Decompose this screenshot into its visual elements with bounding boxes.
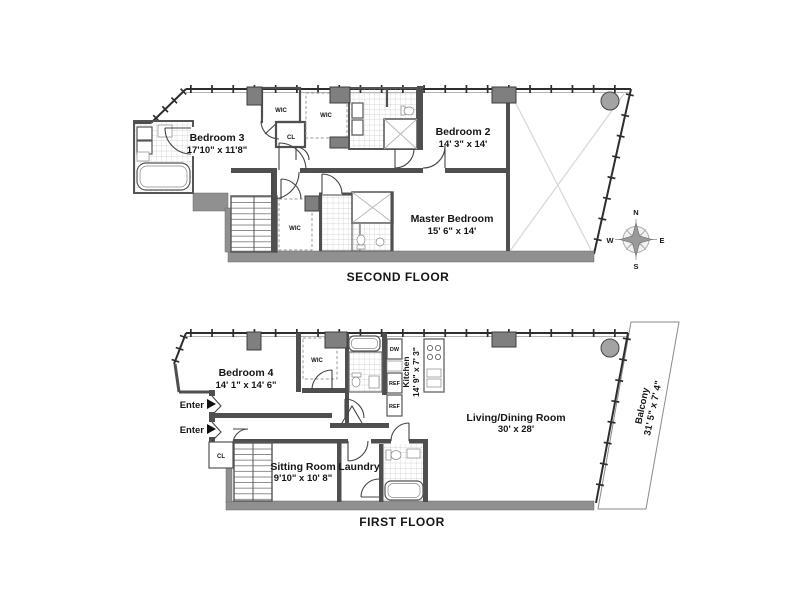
enter-label: Enter (180, 425, 205, 436)
door-swing-icon (296, 147, 309, 160)
bathtub-icon (352, 339, 378, 349)
bedroom3-dims: 17'10" x 11'8" (187, 145, 248, 156)
column-round (601, 92, 619, 110)
bedroom3-label: Bedroom 3 (190, 132, 245, 144)
column (492, 332, 516, 347)
vanity-icon (352, 120, 363, 135)
cabinet (387, 361, 402, 371)
closet-label: CL (217, 454, 225, 460)
door-swing-icon (361, 479, 379, 497)
dw-label: DW (390, 347, 400, 353)
door-swing-icon (348, 441, 368, 461)
second-floor-title: SECOND FLOOR (347, 270, 450, 284)
toilet-icon (391, 451, 401, 460)
enter-label: Enter (180, 400, 205, 411)
toilet-icon (352, 373, 361, 377)
toilet-icon (352, 377, 360, 387)
sink-icon (369, 376, 379, 388)
bathroom-lower-first-floor (384, 444, 423, 501)
sitting-room-label: Sitting Room (270, 461, 335, 473)
door-swing-icon (322, 174, 342, 194)
door-swing-icon (391, 423, 409, 441)
bedroom4-dims: 14' 1" x 14' 6" (215, 380, 276, 391)
open-area-cross-lines (510, 92, 624, 251)
master-bedroom-label: Master Bedroom (411, 213, 494, 225)
laundry-label: Laundry (338, 461, 380, 473)
column (247, 332, 261, 350)
compass-west-label: W (606, 236, 614, 245)
enter-arrow-icon (207, 399, 216, 409)
floor-plan-canvas: Bedroom 3 17'10" x 11'8" Bedroom 2 14' 3… (0, 0, 800, 600)
sink-icon (407, 449, 420, 458)
entry-area: Enter Enter (175, 364, 221, 443)
column (247, 87, 262, 105)
vanity-icon (137, 127, 152, 140)
first-floor-title: FIRST FLOOR (359, 515, 445, 529)
wall-step (225, 208, 231, 252)
second-floor-plan: Bedroom 3 17'10" x 11'8" Bedroom 2 14' 3… (134, 86, 631, 284)
bedroom2-label: Bedroom 2 (436, 126, 491, 138)
column-round (601, 339, 619, 357)
first-floor-south-wall (226, 501, 594, 510)
compass-north-label: N (633, 208, 638, 217)
floor-plan-drawing: Bedroom 3 17'10" x 11'8" Bedroom 2 14' 3… (0, 0, 800, 600)
second-floor-south-wall (228, 251, 594, 262)
wic-label: WIC (311, 358, 323, 364)
toilet-icon (357, 235, 365, 245)
bedroom2-dims: 14' 3" x 14' (439, 139, 488, 150)
door-swing-icon (312, 370, 332, 390)
sink-icon (376, 238, 384, 246)
compass-star (620, 223, 652, 256)
counter-icon (427, 379, 441, 387)
bathroom-second-floor (134, 121, 196, 193)
first-floor-plan: Balcony 31' 5" x 7' 4" Enter (174, 322, 679, 529)
kitchen-dims: 14' 9" x 7' 3" (411, 347, 421, 397)
master-bedroom-dims: 15' 6" x 14' (428, 226, 477, 237)
toilet-icon (137, 152, 149, 161)
staircase-first-floor (234, 442, 272, 501)
door-swing-icon (395, 149, 414, 168)
bedroom4-label: Bedroom 4 (219, 367, 274, 379)
closet-label: CL (287, 135, 295, 141)
toilet-icon (386, 450, 391, 460)
wic-label: WIC (289, 226, 301, 232)
vanity-icon (352, 103, 363, 118)
bathroom-upper-first-floor (349, 336, 382, 392)
bathroom-bedroom2 (349, 86, 423, 168)
sitting-room-dims: 9'10" x 10' 8" (274, 473, 332, 484)
column (492, 87, 516, 103)
bathtub-icon (140, 166, 187, 187)
toilet-icon (404, 107, 414, 115)
wic-label: WIC (320, 113, 332, 119)
kitchen-label: Kitchen (401, 356, 411, 387)
wall-step (226, 464, 232, 502)
compass-east-label: E (659, 236, 664, 245)
column (330, 87, 350, 103)
bathtub-icon (388, 484, 420, 498)
column (325, 332, 347, 348)
ref-label: REF (389, 404, 401, 410)
compass-south-label: S (633, 262, 638, 271)
living-dining-label: Living/Dining Room (466, 412, 565, 424)
compass-rose: N S W E (606, 208, 664, 271)
kitchen: DW REF REF Kitchen 14' 9" x 7' 3" (387, 339, 444, 416)
toilet-icon (357, 245, 365, 249)
ref-label: REF (389, 381, 401, 387)
wic-label: WIC (275, 108, 287, 114)
wall-step (193, 193, 228, 211)
master-closet-and-bath (279, 174, 393, 251)
living-dining-dims: 30' x 28' (498, 424, 534, 435)
counter-icon (427, 369, 441, 377)
staircase-second-floor (231, 196, 277, 252)
